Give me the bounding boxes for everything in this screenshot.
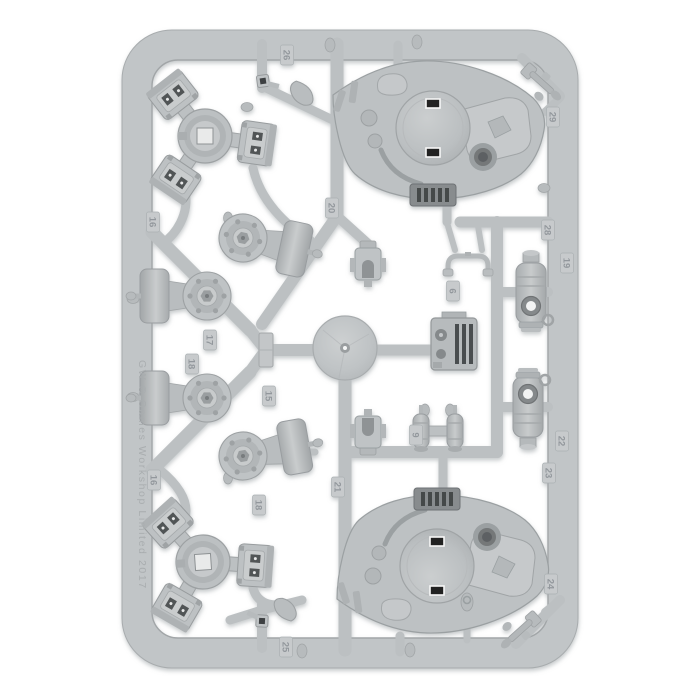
part-number: 21 (332, 482, 343, 493)
flat-tab-part (259, 333, 273, 367)
part-number: 20 (326, 203, 337, 214)
photo-canvas: GW © Games Workshop Limited 2017 2620161… (0, 0, 700, 700)
part-number: 6 (447, 288, 458, 293)
turret-top-plate-upper (333, 61, 545, 206)
part-number: 9 (410, 432, 421, 437)
wheel-drum-4 (215, 415, 328, 486)
part-number: 24 (545, 579, 556, 590)
part-number: 26 (281, 50, 292, 61)
wheel-drum-2 (126, 269, 231, 323)
part-number: 17 (204, 335, 215, 346)
wedge-fitting-top (285, 78, 318, 109)
sprue-frame-group: GW © Games Workshop Limited 2017 2620161… (122, 30, 578, 668)
large-flat-disc (313, 316, 377, 380)
sprue-photo: GW © Games Workshop Limited 2017 2620161… (0, 0, 700, 700)
grab-rail-handle (443, 252, 493, 276)
part-number: 18 (253, 500, 264, 511)
part-number: 18 (186, 359, 197, 370)
part-number: 23 (543, 468, 554, 479)
part-number: 16 (148, 475, 159, 486)
part-number: 25 (280, 642, 291, 653)
ring-fitting (461, 593, 473, 611)
part-number: 16 (147, 217, 158, 228)
part-number: 29 (547, 112, 558, 123)
part-number: 15 (263, 391, 274, 402)
turret-top-plate-lower (337, 488, 549, 633)
engine-block (431, 312, 477, 370)
part-number: 22 (556, 436, 567, 447)
copyright-text: GW © Games Workshop Limited 2017 (136, 360, 148, 590)
part-number: 19 (561, 258, 572, 269)
mount-bracket-upper (350, 241, 386, 287)
part-number: 28 (542, 225, 553, 236)
